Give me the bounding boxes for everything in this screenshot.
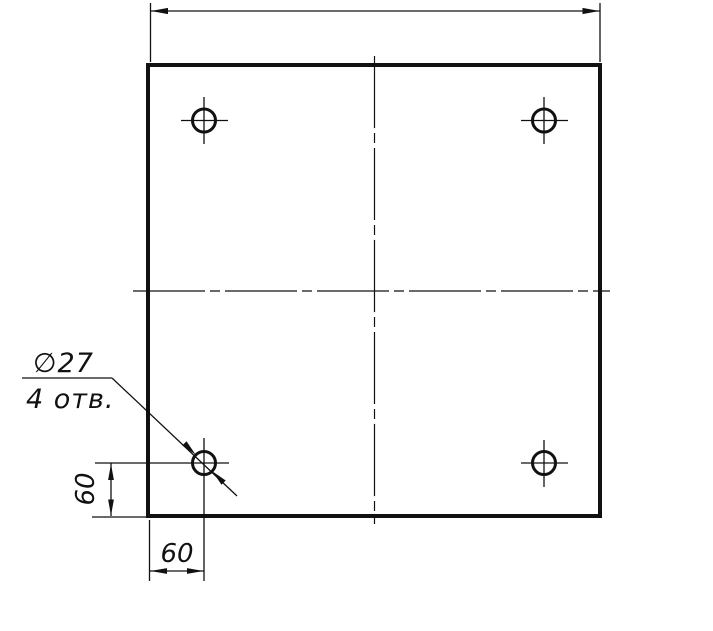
callout-count-label: 4 отв. [26,384,115,415]
dimension-value: 60 [71,472,101,505]
leader-arrowhead-upper-icon [182,441,195,454]
callout-diameter-label: ∅27 [33,348,94,379]
arrowhead-left-icon [151,8,168,14]
dimension-value: 60 [160,539,193,569]
hole-bottom-right [521,440,568,487]
drawing-sheet: 60 60 ∅27 4 отв. [0,0,713,631]
bottom-dimension: 60 [150,520,205,581]
arrowhead-right-icon [583,8,600,14]
top-dimension [151,3,601,62]
hole-top-right [521,97,568,144]
arrowhead-down-icon [108,500,114,516]
drawing-canvas: 60 60 ∅27 4 отв. [0,0,713,631]
hole-top-left [181,97,228,144]
left-dimension: 60 [71,464,150,518]
arrowhead-up-icon [108,464,114,480]
